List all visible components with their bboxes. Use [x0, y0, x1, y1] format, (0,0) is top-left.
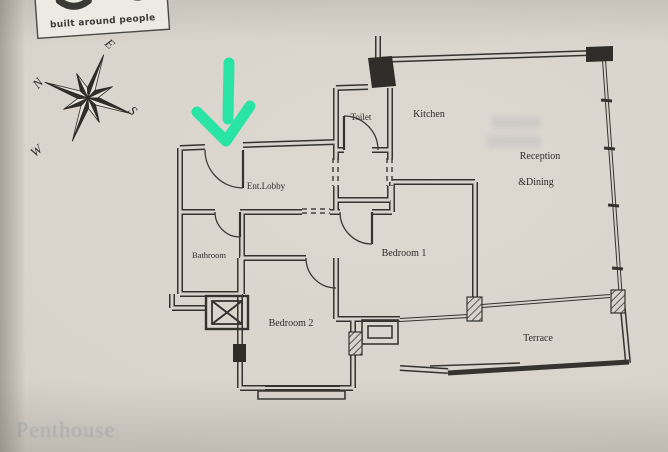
shaft-symbol — [206, 296, 248, 329]
compass-west-label: W — [27, 141, 46, 160]
compass-north-label: N — [29, 74, 48, 92]
room-label-dining: &Dining — [518, 177, 554, 188]
room-label-reception: Reception — [520, 151, 561, 162]
room-label-ent-lobby: Ent.Lobby — [247, 181, 286, 191]
structural-columns — [233, 46, 625, 362]
room-label-bathroom: Bathroom — [192, 250, 226, 260]
bleed-through-smudges — [487, 116, 541, 148]
terrace-outer-wall — [448, 362, 629, 373]
room-label-terrace: Terrace — [523, 333, 553, 344]
bleed-through-penthouse-text: Penthouse — [16, 417, 115, 442]
entrance-annotation-arrow-icon — [197, 63, 250, 141]
compass-south-label: S — [126, 103, 141, 119]
compass-east-label: E — [101, 35, 118, 52]
compass-star-icon — [45, 55, 131, 141]
room-label-bedroom2: Bedroom 2 — [269, 318, 314, 329]
room-label-bedroom1: Bedroom 1 — [382, 248, 427, 259]
logo-box: built around people — [33, 0, 169, 38]
arch-openings — [302, 158, 392, 213]
floor-plan-photo: Toilet Kitchen Reception &Dining Ent.Lob… — [0, 0, 668, 452]
room-label-kitchen: Kitchen — [413, 109, 445, 120]
floor-plan-drawing: Toilet Kitchen Reception &Dining Ent.Lob… — [0, 0, 668, 452]
compass-rose: N E S W — [27, 35, 140, 160]
room-label-toilet: Toilet — [351, 112, 372, 122]
